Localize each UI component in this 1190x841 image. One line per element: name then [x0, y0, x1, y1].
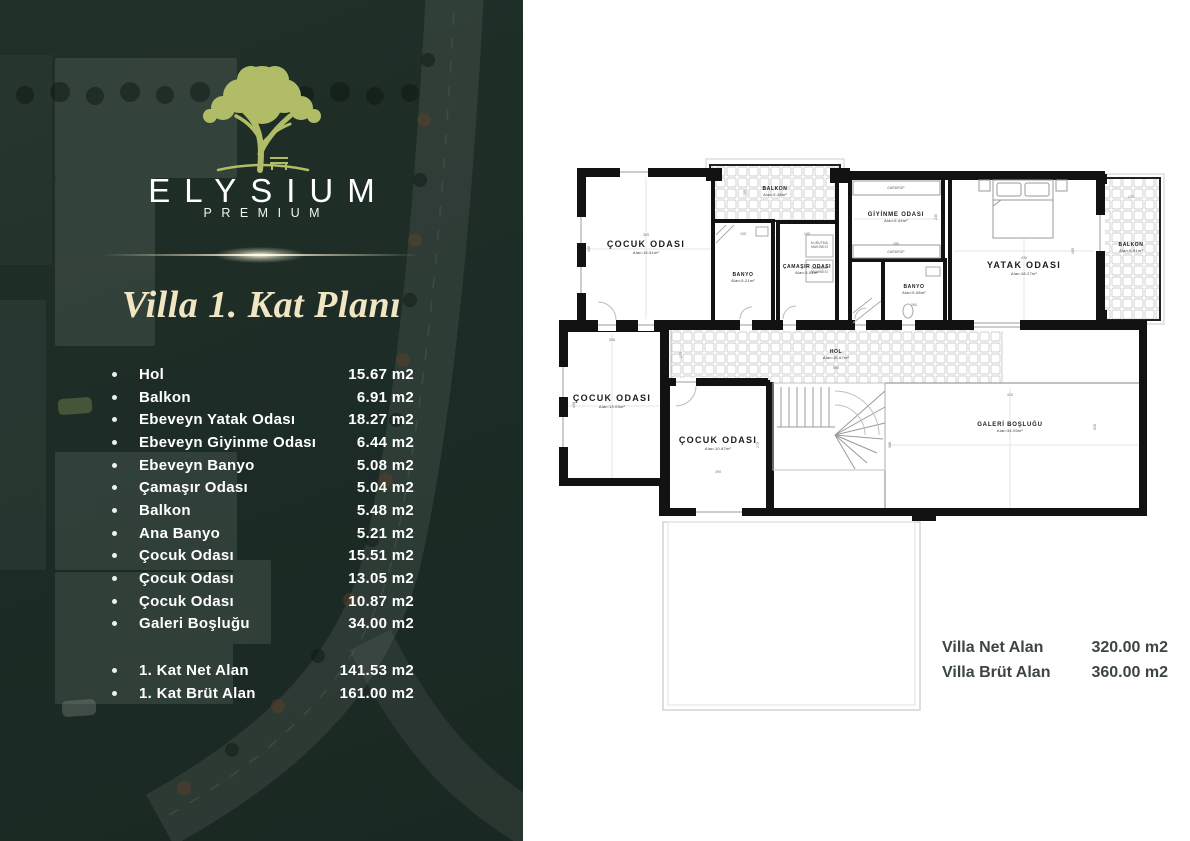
tree-canopy [203, 66, 321, 124]
info-panel: ELYSIUM PREMIUM Villa 1. Kat Planı Hol15… [0, 0, 523, 841]
room-area: 34.00 m2 [348, 615, 414, 632]
room-label: Hol [139, 366, 164, 383]
room-area-label: Alan:5.08m² [902, 290, 926, 295]
room-label: Çocuk Odası [139, 570, 234, 587]
room-label: GİYİNME ODASI [868, 211, 924, 218]
bench-icon [270, 158, 288, 170]
room-area-label: Alan:15.51m² [633, 250, 660, 255]
room-area: 5.21 m2 [357, 525, 414, 542]
room-label: Çocuk Odası [139, 547, 234, 564]
villa-floorplan-poster: ELYSIUM PREMIUM Villa 1. Kat Planı Hol15… [0, 0, 1190, 841]
svg-text:155: 155 [743, 190, 747, 196]
villa-brut-value: 360.00 m2 [1091, 664, 1168, 682]
room-area-list: Hol15.67 m2 Balkon6.91 m2 Ebeveyn Yatak … [112, 363, 414, 705]
floor-plan-drawing: KURUTMA MAKİNESİ ÇAMAŞIR MAKİNESİ GARDRO… [550, 155, 1170, 715]
total-label: 1. Kat Net Alan [139, 662, 249, 679]
room-label: Çocuk Odası [139, 593, 234, 610]
svg-text:280: 280 [893, 242, 899, 246]
villa-brut-row: Villa Brüt Alan 360.00 m2 [942, 660, 1168, 685]
svg-text:175: 175 [679, 352, 683, 358]
svg-text:308: 308 [888, 442, 892, 448]
room-label: Ana Banyo [139, 525, 220, 542]
svg-text:MAKİNESİ: MAKİNESİ [811, 244, 828, 249]
svg-text:980: 980 [833, 366, 839, 370]
room-area: 6.44 m2 [357, 434, 414, 451]
brand-tagline: PREMIUM [0, 206, 523, 220]
list-item: Galeri Boşluğu34.00 m2 [112, 613, 414, 636]
hall-extension [1002, 327, 1140, 383]
villa-totals: Villa Net Alan 320.00 m2 Villa Brüt Alan… [942, 635, 1168, 685]
svg-text:GARDROP: GARDROP [887, 250, 905, 254]
bullet-icon [112, 553, 117, 558]
brand-name: ELYSIUM [0, 172, 523, 210]
room-label: Çamaşır Odası [139, 479, 248, 496]
room-area-label: Alan:10.87m² [705, 446, 732, 451]
bullet-icon [112, 372, 117, 377]
room-area-label: Alan:5.21m² [731, 278, 755, 283]
room-label: YATAK ODASI [987, 260, 1061, 270]
room-label: Ebeveyn Yatak Odası [139, 411, 295, 428]
svg-text:105: 105 [740, 232, 746, 236]
room-area-label: Alan:5.04m² [795, 270, 819, 275]
room-label: ÇOCUK ODASI [607, 239, 685, 249]
terrace-outline [663, 522, 920, 710]
svg-text:308: 308 [609, 338, 615, 342]
list-item: Hol15.67 m2 [112, 363, 414, 386]
room-area-label: Alan:18.27m² [1011, 271, 1038, 276]
list-item-total: 1. Kat Brüt Alan161.00 m2 [112, 682, 414, 705]
room-area-label: Alan:5.48m² [763, 192, 787, 197]
room-area: 5.08 m2 [357, 457, 414, 474]
room-label: Galeri Boşluğu [139, 615, 250, 632]
room-label: Ebeveyn Giyinme Odası [139, 434, 316, 451]
svg-text:260: 260 [911, 303, 917, 307]
svg-text:275: 275 [756, 442, 760, 448]
total-area: 141.53 m2 [340, 662, 414, 679]
bullet-icon [112, 668, 117, 673]
list-item: Ana Banyo5.21 m2 [112, 522, 414, 545]
svg-text:230: 230 [934, 214, 938, 220]
room-area-label: Alan:13.05m² [599, 404, 626, 409]
villa-net-label: Villa Net Alan [942, 639, 1043, 657]
room-label: ÇOCUK ODASI [573, 393, 651, 403]
list-item: Çamaşır Odası5.04 m2 [112, 476, 414, 499]
room-area: 15.67 m2 [348, 366, 414, 383]
svg-text:436: 436 [572, 402, 576, 408]
list-item: Balkon5.48 m2 [112, 499, 414, 522]
svg-text:290: 290 [715, 470, 721, 474]
svg-text:305: 305 [643, 233, 649, 237]
list-item: Balkon6.91 m2 [112, 386, 414, 409]
bullet-icon [112, 508, 117, 513]
room-area: 18.27 m2 [348, 411, 414, 428]
room-label: ÇOCUK ODASI [679, 435, 757, 445]
list-item: Çocuk Odası10.87 m2 [112, 590, 414, 613]
bullet-icon [112, 576, 117, 581]
bullet-icon [112, 621, 117, 626]
total-area: 161.00 m2 [340, 685, 414, 702]
villa-net-row: Villa Net Alan 320.00 m2 [942, 635, 1168, 660]
room-area: 5.04 m2 [357, 479, 414, 496]
room-area-label: Alan:6.91m² [1119, 248, 1143, 253]
room-area: 15.51 m2 [348, 547, 414, 564]
room-area: 10.87 m2 [348, 593, 414, 610]
list-item: Çocuk Odası13.05 m2 [112, 567, 414, 590]
list-item: Ebeveyn Giyinme Odası6.44 m2 [112, 431, 414, 454]
bullet-icon [112, 463, 117, 468]
divider-flare [100, 247, 420, 263]
room-label: GALERİ BOŞLUĞU [977, 420, 1043, 428]
total-label: 1. Kat Brüt Alan [139, 685, 256, 702]
bullet-icon [112, 417, 117, 422]
room-area-label: Alan:6.44m² [884, 218, 908, 223]
svg-text:105: 105 [804, 232, 810, 236]
bullet-icon [112, 485, 117, 490]
page-title: Villa 1. Kat Planı [0, 283, 523, 327]
room-area: 6.91 m2 [357, 389, 414, 406]
room-area-label: Alan:34.00m² [997, 428, 1024, 433]
svg-text:435: 435 [587, 246, 591, 252]
list-item: Çocuk Odası15.51 m2 [112, 545, 414, 568]
room-area-label: Alan:15.67m² [823, 355, 850, 360]
tree-logo-icon [196, 58, 328, 180]
bullet-icon [112, 599, 117, 604]
svg-text:420: 420 [1007, 393, 1013, 397]
list-item: Ebeveyn Yatak Odası18.27 m2 [112, 408, 414, 431]
bullet-icon [112, 395, 117, 400]
room-label: Balkon [139, 389, 191, 406]
villa-brut-label: Villa Brüt Alan [942, 664, 1050, 682]
floorplan-panel: KURUTMA MAKİNESİ ÇAMAŞIR MAKİNESİ GARDRO… [523, 0, 1190, 841]
staircase [773, 383, 885, 470]
room-label: Balkon [139, 502, 191, 519]
room-area: 5.48 m2 [357, 502, 414, 519]
room-dus [850, 260, 883, 325]
list-item: Ebeveyn Banyo5.08 m2 [112, 454, 414, 477]
bullet-icon [112, 440, 117, 445]
room-galeri [885, 383, 1142, 512]
villa-net-value: 320.00 m2 [1091, 639, 1168, 657]
bullet-icon [112, 531, 117, 536]
svg-text:170: 170 [1128, 195, 1134, 199]
svg-text:405: 405 [1071, 248, 1075, 254]
room-label: Ebeveyn Banyo [139, 457, 255, 474]
svg-text:GARDROP: GARDROP [887, 186, 905, 190]
svg-text:430: 430 [1021, 256, 1027, 260]
bullet-icon [112, 691, 117, 696]
list-item-total: 1. Kat Net Alan141.53 m2 [112, 659, 414, 682]
svg-text:525: 525 [1093, 424, 1097, 430]
room-area: 13.05 m2 [348, 570, 414, 587]
